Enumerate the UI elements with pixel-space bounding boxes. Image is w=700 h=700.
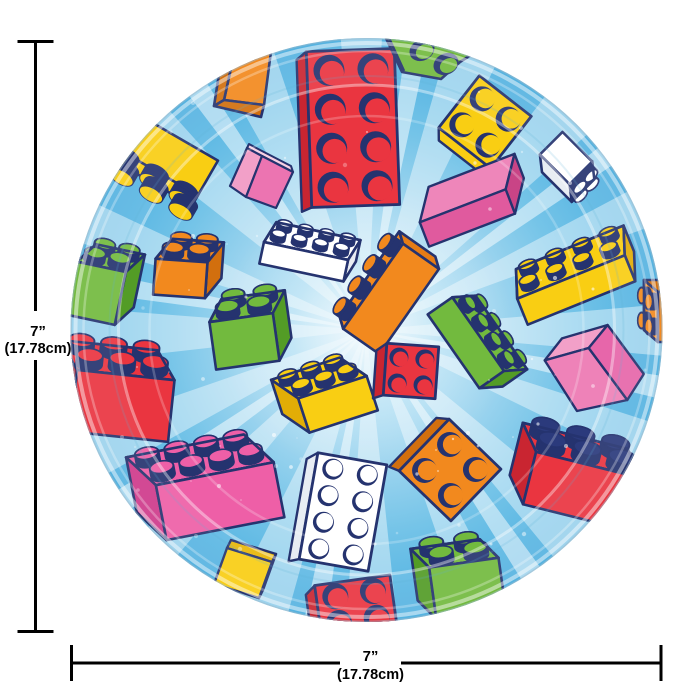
svg-text:7”: 7”	[363, 648, 379, 665]
svg-text:(17.78cm): (17.78cm)	[337, 667, 404, 683]
svg-text:(17.78cm): (17.78cm)	[5, 341, 72, 357]
svg-text:7”: 7”	[30, 323, 46, 340]
